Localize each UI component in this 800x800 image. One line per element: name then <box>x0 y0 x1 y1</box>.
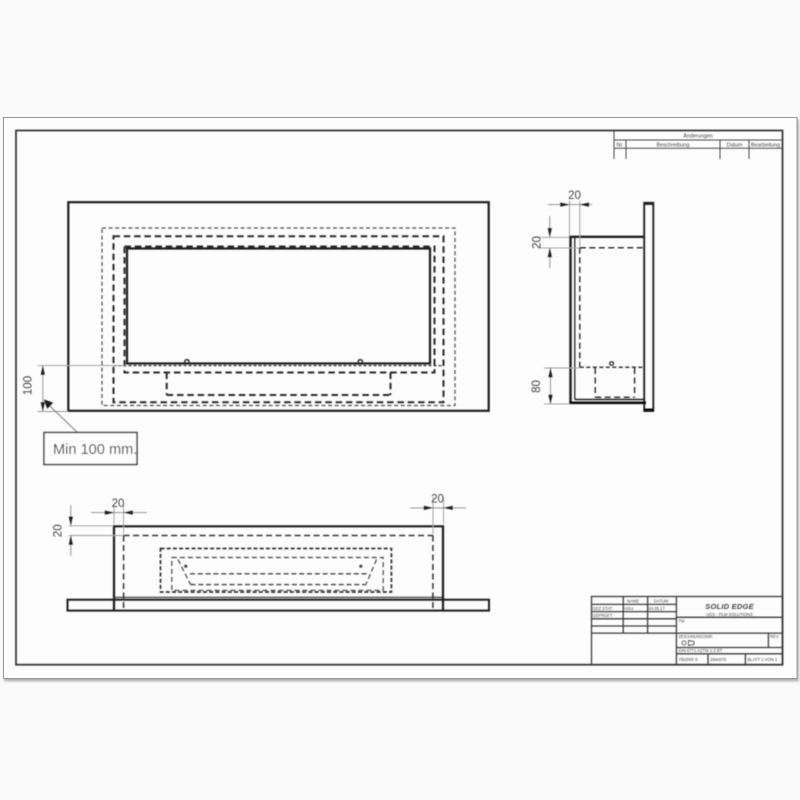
svg-text:Nr.: Nr. <box>617 142 624 148</box>
svg-text:20: 20 <box>112 498 125 510</box>
svg-text:100: 100 <box>23 376 35 395</box>
svg-text:SOLID EDGE: SOLID EDGE <box>705 602 755 611</box>
svg-text:DATUM: DATUM <box>654 598 669 603</box>
svg-text:DIN 6771 A2TW 1:2 BT: DIN 6771 A2TW 1:2 BT <box>679 648 723 653</box>
svg-text:Bearbeitung: Bearbeitung <box>751 142 780 148</box>
svg-text:HSU: HSU <box>625 606 634 611</box>
svg-text:294x078: 294x078 <box>710 657 727 662</box>
svg-text:NAME: NAME <box>627 598 639 603</box>
svg-text:Datum: Datum <box>727 142 743 148</box>
svg-text:UGS - PLM SOLUTIONS: UGS - PLM SOLUTIONS <box>706 612 753 617</box>
svg-text:GEZ.STAT: GEZ.STAT <box>593 606 613 611</box>
svg-text:TM: TM <box>679 619 686 624</box>
svg-text:BLATT 1 VON 1: BLATT 1 VON 1 <box>748 657 779 662</box>
svg-text:FB2000 S: FB2000 S <box>679 657 698 662</box>
svg-text:20: 20 <box>53 524 65 537</box>
svg-text:04.05.17: 04.05.17 <box>649 606 666 611</box>
svg-text:ZEICHNUNGSNR.: ZEICHNUNGSNR. <box>679 634 714 639</box>
svg-text:REV: REV <box>770 634 779 639</box>
svg-text:GEPRÜFT: GEPRÜFT <box>593 613 613 618</box>
svg-text:80: 80 <box>531 380 543 393</box>
svg-text:Beschreibung: Beschreibung <box>657 142 690 148</box>
svg-text:20: 20 <box>431 493 444 505</box>
svg-text:Min 100 mm.: Min 100 mm. <box>53 442 137 458</box>
svg-text:Änderungen: Änderungen <box>683 133 712 140</box>
svg-text:20: 20 <box>568 190 581 202</box>
svg-text:20: 20 <box>532 236 544 249</box>
